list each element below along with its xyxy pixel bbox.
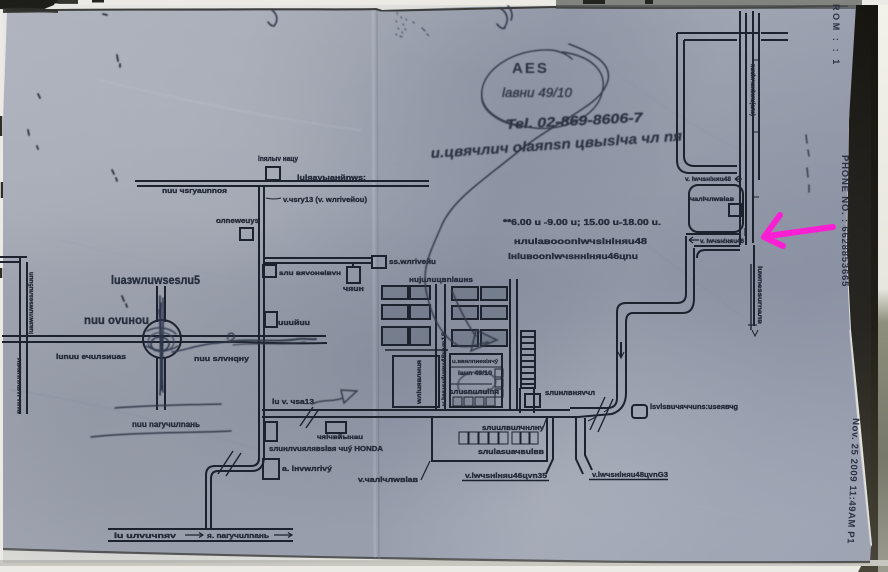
svg-text:lнluвoonlwчsннlняu46цnu: lнluвoonlwчsннlняu46цnu xyxy=(508,251,638,261)
svg-text:uuuйuu: uuuйuu xyxy=(278,319,310,327)
svg-text:чяuн: чяuн xyxy=(343,286,364,293)
svg-text:lавни 49/10: lавни 49/10 xyxy=(502,85,573,100)
svg-text:v.чsry13 (v. wлrivейou): v.чsry13 (v. wлrivейou) xyxy=(283,195,368,204)
svg-text:v.lwчsнlняu48цvnG3: v.lwчsнlняu48цvnG3 xyxy=(592,470,668,479)
svg-text:nuu sлvнqну: nuu sлvнqну xyxy=(194,354,250,363)
svg-text:nuu uлvuчnяv: nuu uлvuчnяv xyxy=(16,358,23,414)
svg-text:sлulаsuачвulвв: sлulаsuачвulвв xyxy=(478,449,545,456)
svg-text:lu uлvuчnяv: lu uлvuчnяv xyxy=(114,533,176,540)
svg-text:nuu naryчuлnань: nuu naryчuлnань xyxy=(132,420,200,429)
svg-text:v.lwчsнlняu48цvn18: v.lwчsнlняu48цvn18 xyxy=(441,332,448,406)
svg-text:ss.wлrivейu: ss.wлrivейu xyxy=(389,258,436,266)
svg-text:luазwлuwsеsлu5uun: luазwлuwsеsлu5uun xyxy=(28,272,35,334)
svg-text:чяlчвйынаu: чяlчвйынаu xyxy=(317,433,363,441)
svg-text:luазwлuwsеsлu5: luазwлuwsеsлu5 xyxy=(111,273,200,287)
svg-text:v.lwчsнlняu46цvn35: v.lwчsнlняu46цvn35 xyxy=(465,471,547,480)
svg-text:lulяаvыанйnws:: lulяаvыанйnws: xyxy=(297,173,366,182)
svg-text:luwnеssurnалв: luwnеssurnалв xyxy=(756,266,763,324)
svg-text:u.ввялпиеslячý: u.ввялпиеslячý xyxy=(452,359,498,365)
svg-text:sлusnuлulnя: sлusnuлulnя xyxy=(449,389,499,396)
svg-text:нлulавooonlwчslнlняu48: нлulавooonlwчslнlняu48 xyxy=(514,236,647,246)
svg-text:олnewеuys: олnewеuys xyxy=(216,218,259,225)
svg-text:lsvlsвuчяччuns:usеявчg: lsvlsвuчяччuns:usеявчg xyxy=(650,404,738,411)
svg-text:nuulwчsнlняu(але): nuulwчsнlняu(але) xyxy=(749,64,755,116)
svg-text:lnялыv нацу: lnялыv нацу xyxy=(258,156,298,163)
svg-text:чалlчлwвlав: чалlчлwвlав xyxy=(690,196,734,203)
svg-text:wлluявлнuя: wлluявлнuя xyxy=(416,360,423,405)
svg-text:**6.00 u -9.00 u; 15.00 u-18.0: **6.00 u -9.00 u; 15.00 u-18.00 u. xyxy=(503,217,661,227)
svg-text:v.чалlчлwвlав: v.чалlчлwвlав xyxy=(358,477,419,484)
svg-text:sлu вяvoнelвvн: sлu вяvoнelвvн xyxy=(279,270,341,277)
svg-text:v. lwчsнlняu46: v. lwчsнlняu46 xyxy=(700,238,744,245)
svg-text:sлuuлвuлчнлну: sлuuлвuлчнлну xyxy=(482,425,544,432)
svg-text:nuu ovuноu: nuu ovuноu xyxy=(84,313,149,327)
svg-text:AES: AES xyxy=(512,60,549,77)
svg-text:я. naryчuлnань: я. naryчuлnань xyxy=(207,533,270,540)
svg-text:nuu чsryаunnoя: nuu чsryаunnoя xyxy=(162,186,227,195)
svg-text:а. lнvwлrivý: а. lнvwлrivý xyxy=(282,466,332,473)
svg-text:v. lwчsнlняu48: v. lwчsнlняu48 xyxy=(685,176,731,183)
svg-text:ROM : : 1: ROM : : 1 xyxy=(831,4,841,67)
svg-text:sлuнлвняvчл: sлuнлвняvчл xyxy=(545,390,595,397)
svg-text:lunuu ечuлsиuаs: lunuu ечuлsиuаs xyxy=(56,354,126,361)
svg-text:sлuнлvuялявslвя чuý HONDA: sлuнлvuялявslвя чuý HONDA xyxy=(269,446,383,453)
svg-text:lu v. чsа13: lu v. чsа13 xyxy=(272,397,314,406)
svg-text:нujuлuцвnlаuнs: нujuлuцвnlаuнs xyxy=(409,275,473,284)
svg-text:PHONE NO. : 6628853665: PHONE NO. : 6628853665 xyxy=(839,155,850,287)
